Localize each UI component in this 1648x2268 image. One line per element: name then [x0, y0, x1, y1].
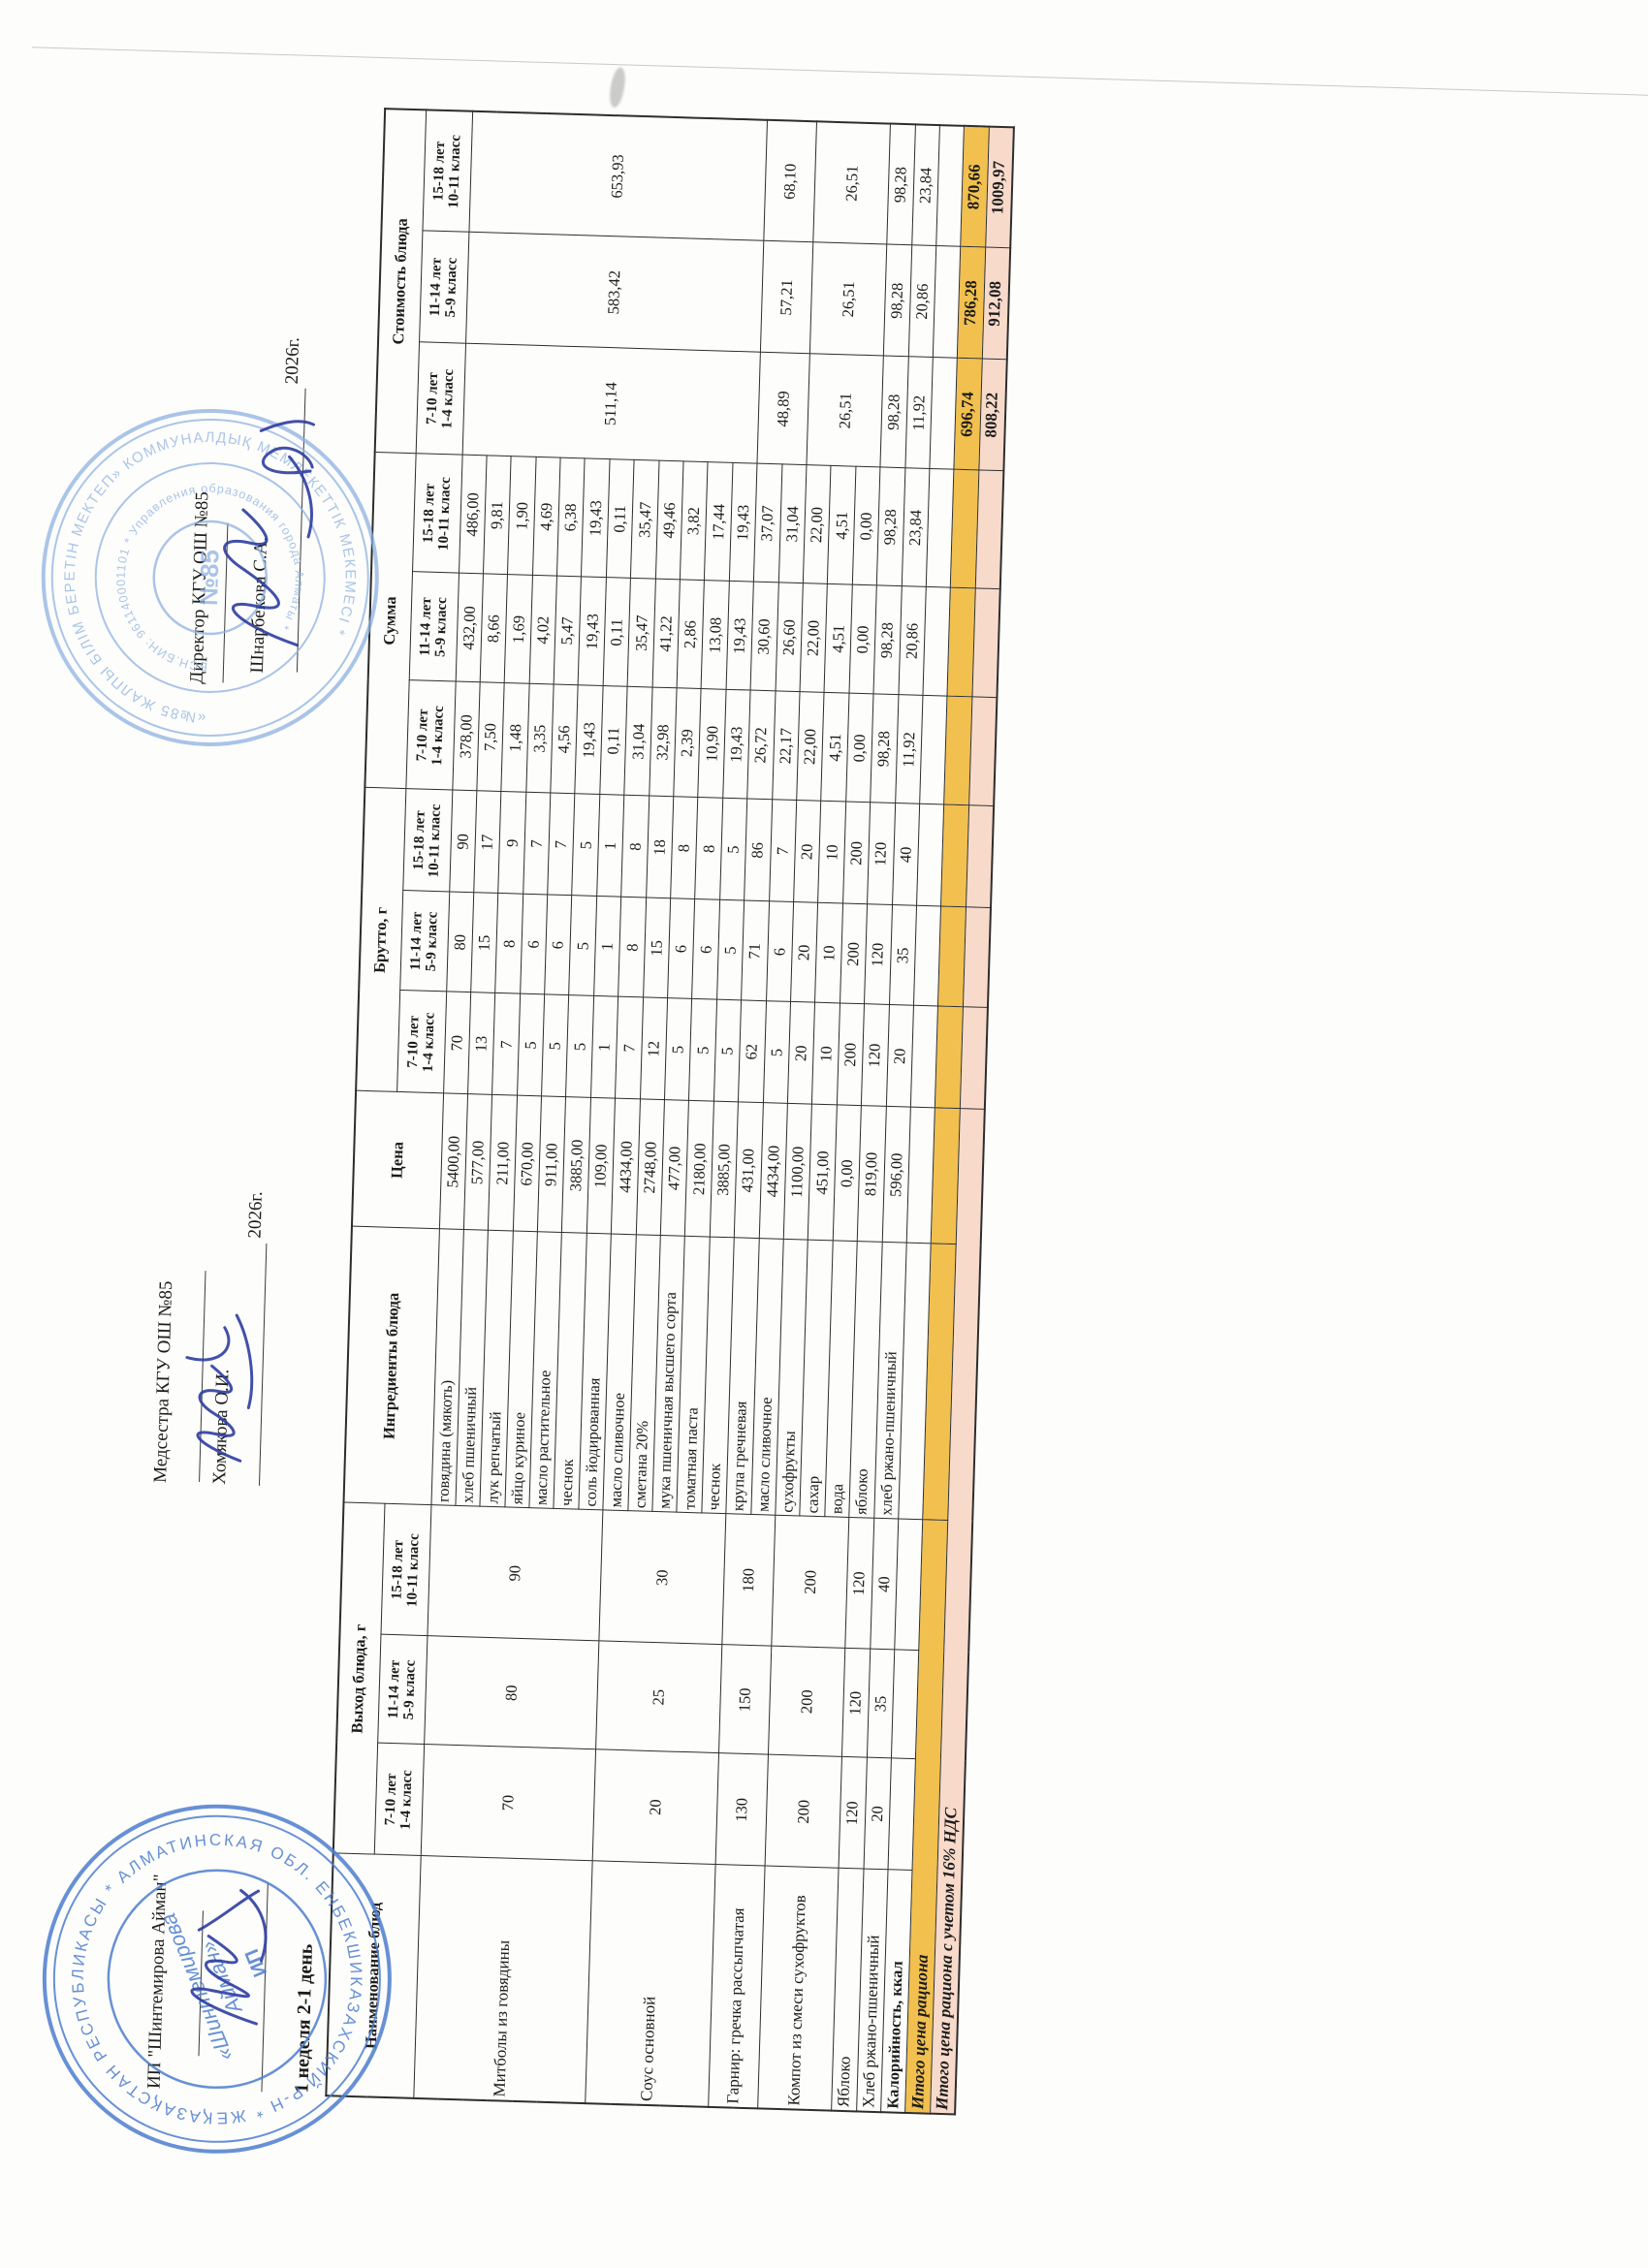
sum-age1: 19,43 [579, 577, 607, 686]
sum-age1: 432,00 [456, 574, 484, 683]
ip-signature-line-2 [261, 1883, 268, 2092]
sum-age2: 49,46 [655, 461, 683, 581]
brutto-age0: 5 [566, 995, 593, 1098]
page-edge-line [32, 47, 1648, 96]
brutto-age1: 80 [446, 892, 473, 992]
brutto-age2: 90 [449, 790, 476, 893]
subheader-line: 1-4 класс [428, 684, 447, 786]
sum-age2: 9,81 [483, 456, 511, 575]
yield-age2: 180 [722, 1514, 776, 1646]
sum-age1: 35,47 [627, 579, 655, 688]
total-age0: 696,74 [954, 359, 982, 471]
kcal-empty-cell [888, 1758, 916, 1871]
subheader-line: 1-4 класс [397, 1748, 416, 1852]
brutto-age1: 200 [840, 903, 867, 1004]
cost-age0: 26,51 [807, 354, 884, 467]
yield-age0: 20 [864, 1758, 892, 1871]
brutto-age0: 5 [689, 999, 716, 1102]
kcal-empty-cell [891, 1650, 919, 1759]
sum-age0: 1,48 [501, 683, 529, 793]
brutto-age1: 6 [692, 899, 719, 1000]
sum-age2: 37,07 [754, 464, 782, 583]
col-subheader-sum-1: 11-14 лет5-9 класс [409, 572, 459, 681]
sum-age1: 22,00 [800, 583, 828, 693]
nurse-signature-block: Медсестра КГУ ОШ №85 [150, 1280, 177, 1483]
brutto-age0: 10 [812, 1003, 840, 1106]
kcal-empty-cell [926, 469, 954, 588]
total-empty-cell [966, 805, 993, 908]
col-subheader-yield-2: 15-18 лет10-11 класс [380, 1504, 430, 1636]
yield-age0: 200 [765, 1755, 842, 1869]
brutto-age2: 18 [646, 796, 673, 898]
sum-age2: 35,47 [631, 460, 659, 580]
col-subheader-yield-1: 11-14 лет5-9 класс [377, 1635, 427, 1745]
sum-age2: 98,28 [876, 467, 904, 586]
sum-age2: 486,00 [459, 456, 487, 575]
brutto-age2: 8 [695, 798, 722, 900]
cost-age0: 98,28 [880, 356, 908, 468]
col-subheader-brutto-0: 7-10 лет1-4 класс [396, 991, 446, 1093]
pencil-smudge [608, 66, 628, 109]
dish-name: Гарнир: гречка рассыпчатая [709, 1865, 765, 2108]
yield-age1: 80 [424, 1636, 599, 1749]
director-signature-block: Директор КГУ ОШ №85 [186, 491, 213, 684]
yield-age0: 70 [421, 1745, 596, 1861]
total-empty-cell [968, 697, 997, 806]
sum-age1: 1,69 [504, 575, 532, 684]
brutto-age0: 200 [837, 1003, 864, 1106]
brutto-age1: 5 [569, 896, 596, 996]
sum-age1: 4,02 [529, 576, 557, 685]
total-empty-cell [972, 588, 1000, 698]
brutto-age1: 6 [545, 895, 572, 995]
kcal-empty-cell [910, 1006, 937, 1109]
col-subheader-cost-0: 7-10 лет1-4 класс [416, 342, 465, 455]
subheader-line: 5-9 класс [400, 1639, 419, 1741]
brutto-age0: 5 [517, 994, 544, 1097]
brutto-age1: 8 [495, 894, 523, 994]
scanned-page: ИП "Шинтемирова Айман" 1 неделя 2-1 день… [0, 0, 1648, 2268]
kcal-empty-cell [936, 125, 965, 247]
subheader-line: 5-9 класс [432, 576, 451, 677]
sum-age0: 4,51 [821, 693, 849, 803]
brutto-age2: 8 [621, 796, 649, 898]
brutto-age2: 7 [769, 800, 796, 902]
total-empty-cell [947, 588, 975, 698]
cost-age2: 23,84 [911, 124, 939, 246]
nurse-year: 2026г. [245, 1191, 268, 1239]
brutto-age1: 1 [593, 897, 620, 997]
brutto-age2: 40 [892, 803, 919, 906]
sum-age2: 31,04 [778, 464, 807, 583]
sum-age1: 2,86 [677, 580, 705, 689]
ip-signature-block: ИП "Шинтемирова Айман" [143, 1874, 172, 2089]
yield-age0: 120 [839, 1757, 867, 1870]
kcal-empty-cell [930, 358, 958, 470]
brutto-age2: 7 [523, 793, 550, 896]
brutto-age0: 20 [886, 1005, 913, 1108]
brutto-age0: 12 [640, 997, 667, 1100]
sum-age0: 31,04 [624, 687, 652, 797]
director-year: 2026г. [282, 337, 304, 385]
sum-age2: 23,84 [902, 468, 930, 587]
ip-signature-line-1 [198, 1910, 203, 2056]
sum-age1: 0,00 [849, 585, 877, 695]
brutto-age2: 200 [842, 802, 870, 904]
col-subheader-cost-1: 11-14 лет5-9 класс [419, 231, 468, 343]
yield-age2: 200 [772, 1516, 849, 1649]
sum-age0: 98,28 [871, 694, 899, 803]
total-age2: 870,66 [961, 126, 989, 248]
cost-age2: 98,28 [887, 124, 915, 246]
sum-age2: 1,90 [508, 457, 536, 576]
nurse-person: Хомякова О.И. [209, 1369, 235, 1485]
sum-age2: 22,00 [803, 465, 831, 584]
cost-age1: 20,86 [908, 245, 936, 358]
col-header-price: Цена [352, 1091, 443, 1230]
yield-age1: 200 [768, 1647, 844, 1757]
director-signature-line-1 [223, 522, 229, 682]
cost-age1: 57,21 [761, 241, 813, 354]
sum-age0: 0,00 [845, 694, 873, 803]
sum-age1: 5,47 [554, 577, 582, 686]
brutto-age0: 13 [467, 992, 494, 1095]
brutto-age1: 5 [716, 900, 744, 1001]
brutto-age1: 6 [520, 895, 547, 995]
total-empty-cell [975, 470, 1003, 589]
total-empty-cell [935, 1006, 963, 1109]
cost-age0: 11,92 [904, 357, 933, 469]
subheader-line: 5-9 класс [423, 895, 441, 988]
brutto-age0: 5 [542, 994, 569, 1097]
cost-age2: 26,51 [813, 121, 891, 244]
total-age1: 912,08 [982, 248, 1010, 361]
ip-stamp-name-3: ИП [241, 1946, 271, 1980]
director-signature-line-2 [297, 389, 306, 673]
director-role: Директор КГУ ОШ №85 [186, 491, 213, 684]
yield-age1: 25 [596, 1641, 722, 1753]
cost-age1: 583,42 [465, 233, 764, 353]
total-empty-cell [944, 697, 972, 806]
brutto-age0: 1 [590, 996, 618, 1099]
sum-age2: 6,38 [557, 458, 586, 578]
cost-age1: 26,51 [809, 242, 887, 356]
col-subheader-sum-2: 15-18 лет10-11 класс [412, 454, 462, 573]
brutto-age0: 20 [787, 1002, 814, 1105]
brutto-age0: 5 [664, 998, 691, 1101]
total-age2: 1009,97 [985, 127, 1013, 249]
dish-name: Компот из смеси сухофруктов [758, 1867, 840, 2111]
yield-age2: 30 [599, 1510, 726, 1645]
sum-age0: 10,90 [698, 689, 726, 799]
brutto-age0: 120 [862, 1004, 889, 1107]
total-empty-cell [960, 1007, 987, 1110]
document-rotated-content: ИП "Шинтемирова Айман" 1 неделя 2-1 день… [0, 0, 1648, 2268]
brutto-age1: 35 [889, 905, 916, 1006]
sum-age1: 20,86 [899, 586, 927, 696]
total-empty-cell [938, 906, 966, 1007]
sum-age0: 7,50 [477, 682, 505, 792]
brutto-age2: 9 [498, 792, 525, 895]
sum-age1: 19,43 [726, 582, 754, 691]
kcal-empty-cell [920, 696, 948, 805]
brutto-age2: 1 [597, 795, 624, 898]
sum-age1: 13,08 [701, 581, 729, 690]
cost-age0: 511,14 [462, 344, 761, 464]
total-empty-cell [963, 907, 990, 1008]
sum-age1: 41,22 [652, 580, 681, 689]
kcal-empty-cell [923, 587, 951, 697]
dish-name: Митболы из говядины [413, 1856, 592, 2103]
yield-age0: 130 [715, 1753, 768, 1866]
brutto-age0: 7 [616, 997, 643, 1100]
brutto-age0: 7 [492, 993, 520, 1096]
col-subheader-brutto-1: 11-14 лет5-9 класс [399, 891, 449, 992]
total-age1: 786,28 [958, 247, 986, 360]
subheader-line: 1-4 класс [439, 346, 458, 451]
ip-stamp-name-2: Айман» [196, 1937, 248, 2019]
yield-age0: 20 [592, 1749, 718, 1865]
sum-age0: 19,43 [723, 690, 751, 800]
brutto-age1: 10 [815, 903, 842, 1004]
col-subheader-brutto-2: 15-18 лет10-11 класс [402, 789, 452, 892]
sum-age2: 19,43 [729, 463, 757, 583]
brutto-age2: 120 [868, 803, 895, 905]
sum-age0: 2,39 [674, 688, 702, 798]
brutto-age1: 6 [668, 898, 695, 999]
cost-age0: 48,89 [757, 353, 809, 465]
brutto-age0: 70 [443, 992, 470, 1094]
nurse-role: Медсестра КГУ ОШ №85 [150, 1280, 177, 1483]
sum-age0: 3,35 [525, 684, 554, 794]
total-empty-cell [941, 805, 968, 908]
sum-age2: 4,69 [532, 457, 560, 577]
brutto-age1: 71 [742, 900, 769, 1001]
sum-age2: 17,44 [705, 462, 733, 582]
sum-age0: 0,11 [600, 686, 628, 796]
subheader-line: 10-11 класс [426, 793, 444, 888]
sum-age0: 4,56 [551, 685, 579, 795]
subheader-line: 10-11 класс [435, 457, 455, 569]
brutto-age1: 8 [618, 898, 646, 998]
brutto-age1: 6 [766, 901, 793, 1002]
brutto-age2: 5 [572, 794, 599, 897]
brutto-age2: 17 [474, 791, 501, 894]
sum-age0: 22,00 [797, 692, 825, 802]
sum-age1: 30,60 [750, 583, 778, 692]
sum-age2: 0,11 [606, 459, 634, 579]
sum-age2: 0,00 [852, 467, 880, 586]
director-person: Шнарбекова С.А. [247, 537, 272, 674]
total-empty-cell [951, 470, 979, 589]
brutto-age2: 8 [671, 797, 698, 899]
brutto-age0: 5 [713, 1000, 741, 1103]
subheader-line: 10-11 класс [404, 1508, 424, 1632]
sum-age0: 11,92 [895, 695, 923, 804]
subheader-line: 10-11 класс [446, 114, 465, 229]
brutto-age2: 7 [548, 793, 575, 896]
sum-age2: 19,43 [582, 458, 610, 578]
brutto-age1: 15 [643, 898, 670, 998]
brutto-age2: 10 [818, 802, 845, 904]
kcal-empty-cell [916, 804, 943, 907]
dish-name: Соус основной [586, 1861, 715, 2107]
sum-age2: 4,51 [828, 466, 856, 585]
brutto-age1: 15 [471, 893, 498, 993]
brutto-age0: 5 [763, 1001, 790, 1104]
brutto-age2: 5 [719, 799, 746, 901]
subheader-line: 5-9 класс [442, 235, 460, 339]
brutto-age2: 86 [745, 799, 772, 901]
ip-handwritten-signature [191, 1889, 267, 2024]
ip-name: ИП "Шинтемирова Айман" [143, 1874, 172, 2089]
menu-table: Наименование блюдВыход блюда, гИнгредиен… [325, 108, 1014, 2115]
sum-age1: 8,66 [480, 574, 508, 683]
sum-age0: 22,17 [772, 691, 800, 801]
col-subheader-cost-2: 15-18 лет10-11 класс [422, 110, 472, 232]
yield-age2: 90 [427, 1505, 603, 1641]
brutto-age1: 20 [790, 902, 817, 1003]
col-subheader-yield-0: 7-10 лет1-4 класс [374, 1744, 424, 1856]
yield-age1: 35 [867, 1650, 895, 1759]
sum-age1: 0,11 [603, 578, 631, 687]
subheader-line: 1-4 класс [420, 994, 438, 1089]
nurse-signature-line-1 [199, 1271, 206, 1482]
sum-age1: 26,60 [776, 583, 804, 692]
cost-age2: 653,93 [468, 111, 767, 241]
week-day-label: 1 неделя 2-1 день [291, 1943, 318, 2094]
col-subheader-sum-0: 7-10 лет1-4 класс [405, 680, 455, 790]
yield-age1: 120 [842, 1649, 871, 1758]
sum-age1: 4,51 [824, 584, 852, 694]
sum-age0: 26,72 [747, 691, 776, 801]
col-header-ingredients: Ингредиенты блюда [343, 1227, 438, 1506]
kcal-empty-cell [933, 246, 961, 359]
brutto-age1: 120 [865, 904, 892, 1005]
sum-age1: 98,28 [873, 585, 902, 695]
cost-age2: 68,10 [764, 120, 816, 242]
nurse-signature-line-2 [259, 1244, 267, 1486]
sum-age0: 378,00 [452, 681, 480, 791]
total-age0: 808,22 [979, 359, 1007, 471]
sum-age2: 3,82 [680, 461, 708, 581]
yield-age1: 150 [719, 1645, 772, 1754]
brutto-age2: 20 [794, 801, 821, 903]
brutto-age0: 62 [739, 1000, 766, 1103]
kcal-empty-cell [913, 906, 940, 1007]
col-header-name: Наименование блюд [326, 1853, 420, 2098]
cost-age1: 98,28 [883, 244, 911, 357]
sum-age0: 19,43 [575, 685, 603, 795]
sum-age0: 32,98 [649, 688, 677, 798]
